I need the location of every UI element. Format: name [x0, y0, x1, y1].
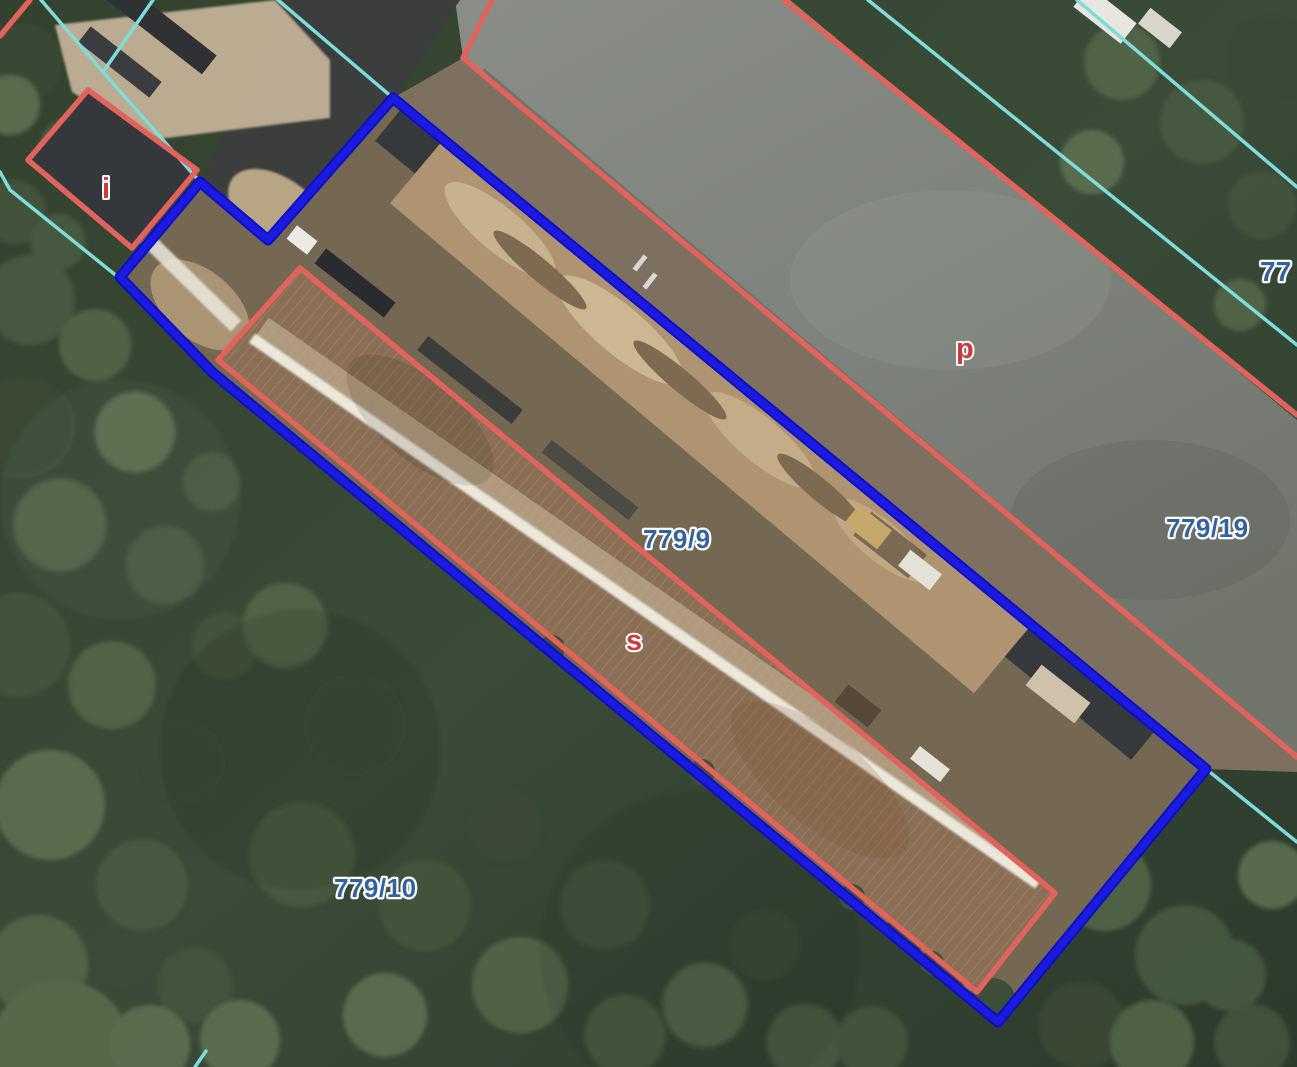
parcel-label-779-19: 779/19: [1166, 513, 1249, 543]
land-use-label-i: i: [102, 173, 110, 205]
parcel-label-779-10: 779/10: [334, 873, 417, 903]
land-use-label-s: s: [626, 625, 642, 657]
map-canvas[interactable]: 779/9 779/19 779/10 77 i p s: [0, 0, 1297, 1067]
land-use-label-p: p: [956, 333, 974, 365]
parcel-label-779-9: 779/9: [643, 524, 711, 554]
aerial-map: 779/9 779/19 779/10 77 i p s: [0, 0, 1297, 1067]
parcel-label-77-clipped: 77: [1260, 256, 1291, 287]
